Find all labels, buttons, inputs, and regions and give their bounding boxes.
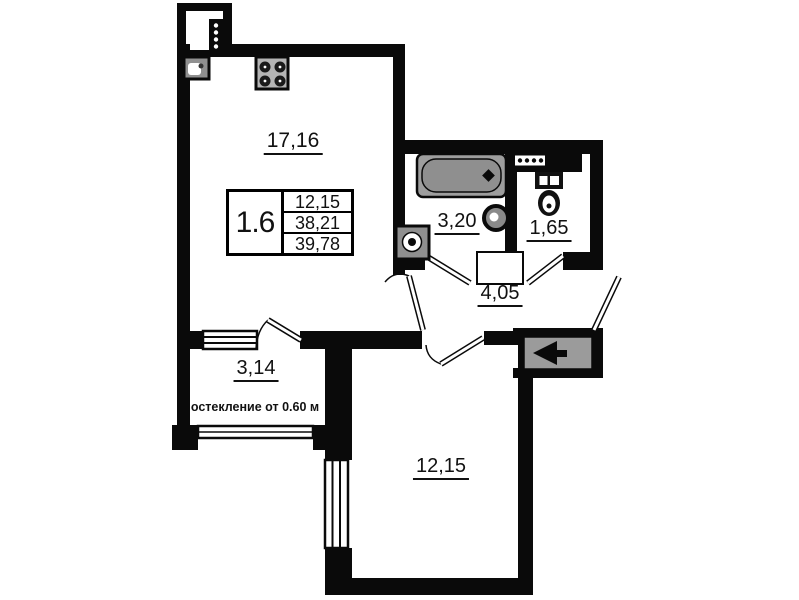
door-swing-balcony (256, 320, 301, 349)
door-leaves-open (477, 252, 523, 284)
room-area-label-toilet: 1,65 (527, 217, 572, 242)
floor-plan-drawing (0, 0, 799, 600)
vent-grille-wc-icon (514, 155, 546, 167)
unit-number: 1.6 (229, 192, 284, 253)
door-swing-toilet (528, 256, 563, 283)
unit-info-table: 1.6 12,15 38,21 39,78 (226, 189, 354, 256)
kitchen-sink-icon (184, 57, 209, 79)
door-swing-bathroom (426, 256, 470, 283)
toilet-icon (535, 172, 563, 216)
glazing-note: остекление от 0.60 м (191, 400, 319, 414)
door-swing-kitchen-hall (385, 274, 423, 330)
room-area-label-bedroom: 12,15 (413, 455, 469, 480)
room-area-label-bathroom: 3,20 (435, 210, 480, 235)
washbasin-icon (396, 226, 429, 259)
walls (172, 3, 603, 595)
unit-living-area: 12,15 (284, 192, 351, 211)
window-kitchen-balcony (203, 331, 257, 349)
unit-area: 38,21 (284, 211, 351, 234)
unit-total-area: 39,78 (284, 234, 351, 253)
window-balcony-outer (198, 426, 313, 438)
unit-areas: 12,15 38,21 39,78 (284, 192, 351, 253)
water-heater-icon (484, 206, 508, 230)
window-bedroom (325, 460, 348, 548)
door-swing-bedroom (426, 338, 483, 364)
stove-icon (256, 57, 288, 89)
room-area-label-hallway: 4,05 (478, 282, 523, 307)
bathtub-icon (417, 154, 506, 197)
door-swing-entrance (594, 277, 619, 330)
room-area-label-balcony: 3,14 (234, 357, 279, 382)
room-area-label-kitchen-living: 17,16 (264, 129, 323, 155)
floor-plan: 17,16 3,20 1,65 4,05 3,14 12,15 остеклен… (0, 0, 799, 600)
